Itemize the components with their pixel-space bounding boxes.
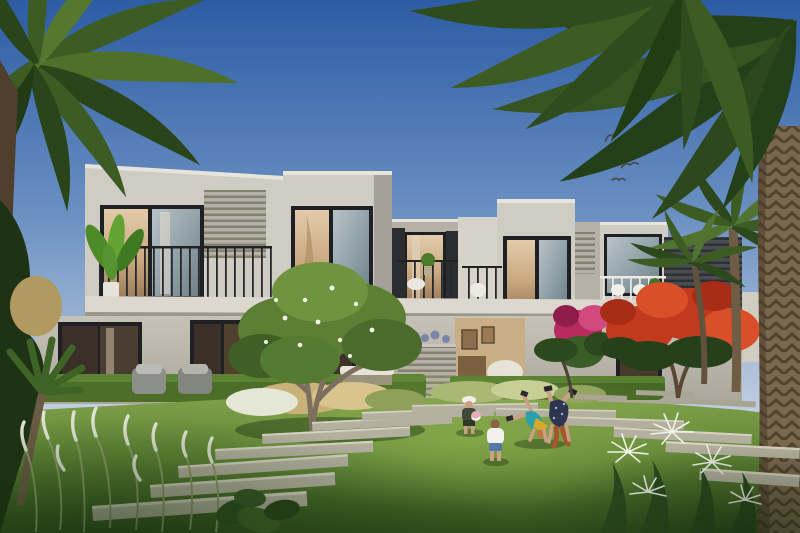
- rendered-photo: [0, 0, 800, 533]
- white-chair: [611, 284, 625, 296]
- block-b-shade: [374, 171, 392, 306]
- parapet-cap: [283, 171, 392, 175]
- block-a-balcony: [80, 190, 272, 300]
- white-pot: [103, 282, 119, 298]
- parapet-cap: [600, 222, 668, 225]
- lounge-chair: [407, 278, 425, 290]
- parapet-cap: [497, 199, 575, 203]
- parapet-cap: [392, 219, 458, 222]
- link-c-balcony: [392, 228, 458, 304]
- louver-panel: [575, 232, 595, 274]
- white-chair: [470, 283, 486, 297]
- potted-plant: [421, 253, 435, 267]
- shadow-vignette: [300, 340, 800, 533]
- scene-canvas: [0, 0, 800, 533]
